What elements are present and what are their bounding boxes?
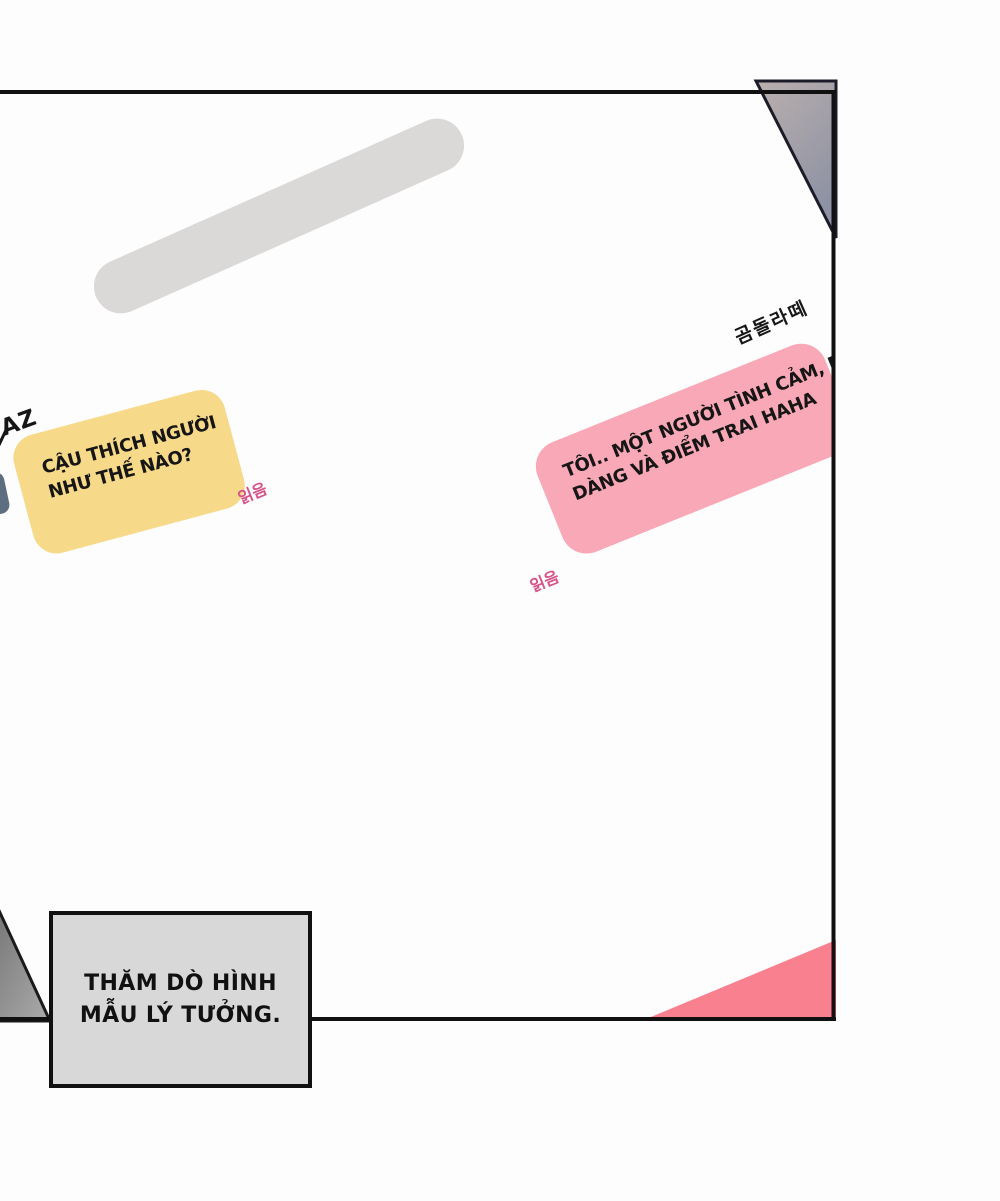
read-receipt-right: 읽음 <box>512 558 577 603</box>
caption-box: THĂM DÒ HÌNH MẪU LÝ TƯỞNG. <box>49 911 312 1088</box>
avatar-fragment <box>0 471 11 518</box>
comic-panel: 곰돌라떼 TÔI.. MỘT NGƯỜI TÌNH CẢM, DỊU DÀNG … <box>0 0 1000 1201</box>
blank-message-pill <box>85 110 472 322</box>
chat-screenshot-area: 곰돌라떼 TÔI.. MỘT NGƯỜI TÌNH CẢM, DỊU DÀNG … <box>0 94 833 1019</box>
message-bubble-left: CẬU THÍCH NGƯỜI NHƯ THẾ NÀO? <box>8 385 250 559</box>
caption-text-line: THĂM DÒ HÌNH <box>84 968 277 999</box>
message-bubble-right: TÔI.. MỘT NGƯỜI TÌNH CẢM, DỊU DÀNG VÀ ĐI… <box>528 336 833 562</box>
caption-text-line: MẪU LÝ TƯỞNG. <box>80 1000 281 1031</box>
